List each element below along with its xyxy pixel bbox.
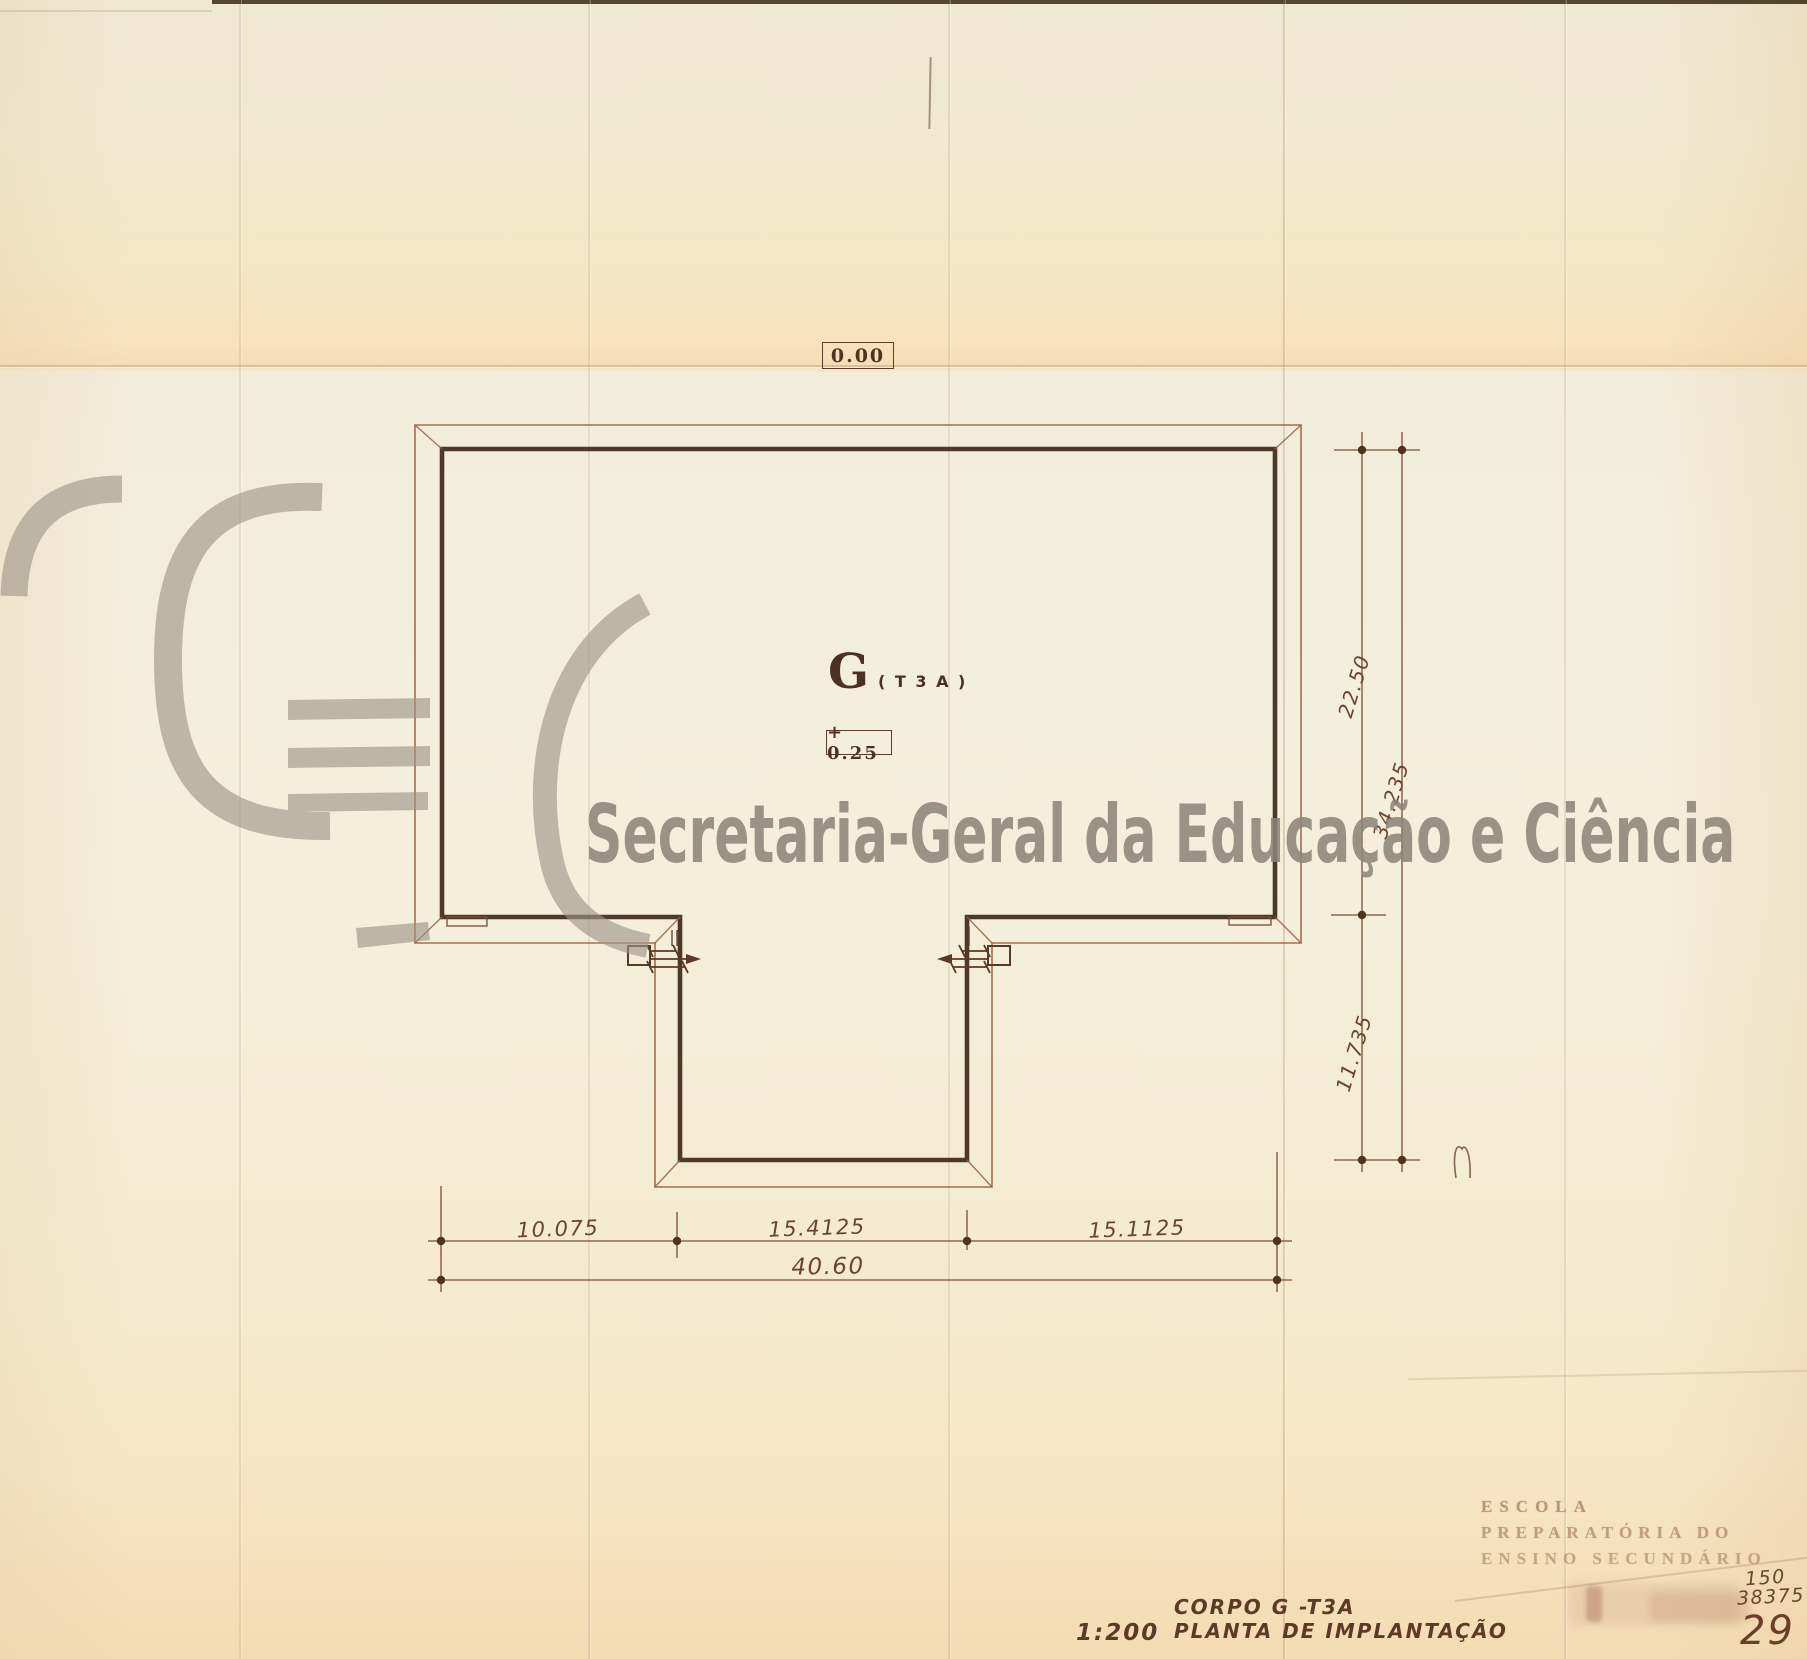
logo-stroke-c [168, 497, 330, 826]
stamp-line-3: ENSINO SECUNDÁRIO [1481, 1549, 1767, 1569]
stamp-line-1: ESCOLA [1481, 1497, 1593, 1517]
titleblock-body: CORPO G -T3A [1174, 1595, 1355, 1619]
stamp-smudge-right [1650, 1592, 1750, 1622]
logo-stroke-paren [545, 604, 648, 946]
titleblock-title: PLANTA DE IMPLANTAÇÃO [1174, 1619, 1508, 1643]
sheet-number: 29 [1740, 1608, 1795, 1654]
logo-bar-1 [288, 698, 430, 720]
watermark-text: Secretaria-Geral da Educação e Ciência [585, 795, 1735, 875]
stamp-smudge-dark [1586, 1586, 1602, 1622]
reference-number-bottom: 38375 [1736, 1584, 1805, 1610]
titleblock-scale: 1:200 [1076, 1620, 1159, 1646]
logo-stroke-hook [14, 489, 122, 596]
stamp-line-2: PREPARATÓRIA DO [1481, 1523, 1734, 1543]
scanned-drawing-sheet: 0.00 G ( T 3 A ) + 0.25 22.50 34.235 11.… [0, 0, 1807, 1659]
logo-bar-3 [288, 792, 428, 812]
logo-bar-2 [288, 746, 430, 768]
logo-bar-slant [356, 922, 430, 948]
